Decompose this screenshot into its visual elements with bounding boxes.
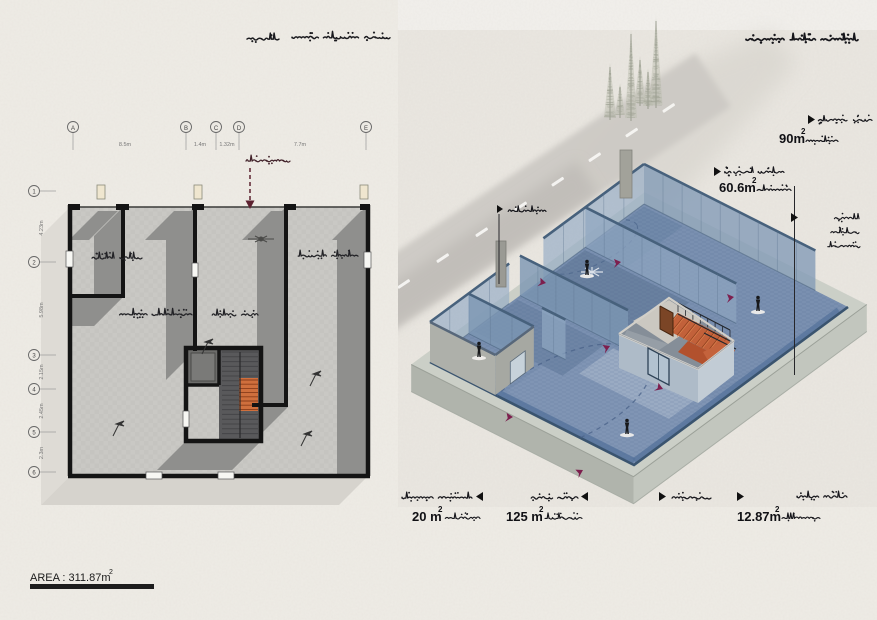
svg-text:125 m: 125 m: [506, 509, 543, 524]
svg-text:2: 2: [539, 505, 544, 514]
svg-text:C: C: [214, 126, 219, 132]
svg-text:7.7m: 7.7m: [294, 142, 307, 148]
svg-text:4.23m: 4.23m: [39, 220, 45, 236]
svg-text:2.3m: 2.3m: [39, 446, 45, 459]
svg-text:5.98m: 5.98m: [39, 302, 45, 318]
svg-text:1.4m: 1.4m: [194, 142, 207, 148]
svg-text:2: 2: [775, 505, 780, 514]
svg-text:8.5m: 8.5m: [119, 142, 132, 148]
svg-text:1.32m: 1.32m: [219, 142, 235, 148]
svg-text:60.6m: 60.6m: [719, 180, 756, 195]
svg-text:2.45m: 2.45m: [39, 403, 45, 419]
svg-text:2: 2: [752, 176, 757, 185]
svg-text:AREA : 311.87m: AREA : 311.87m: [30, 572, 111, 584]
svg-text:D: D: [237, 126, 242, 132]
svg-text:2: 2: [801, 127, 806, 136]
svg-text:E: E: [364, 126, 368, 132]
svg-text:A: A: [71, 126, 75, 132]
svg-text:2: 2: [438, 505, 443, 514]
svg-text:B: B: [184, 126, 188, 132]
svg-text:2: 2: [109, 569, 113, 576]
svg-text:2.15m: 2.15m: [39, 364, 45, 380]
